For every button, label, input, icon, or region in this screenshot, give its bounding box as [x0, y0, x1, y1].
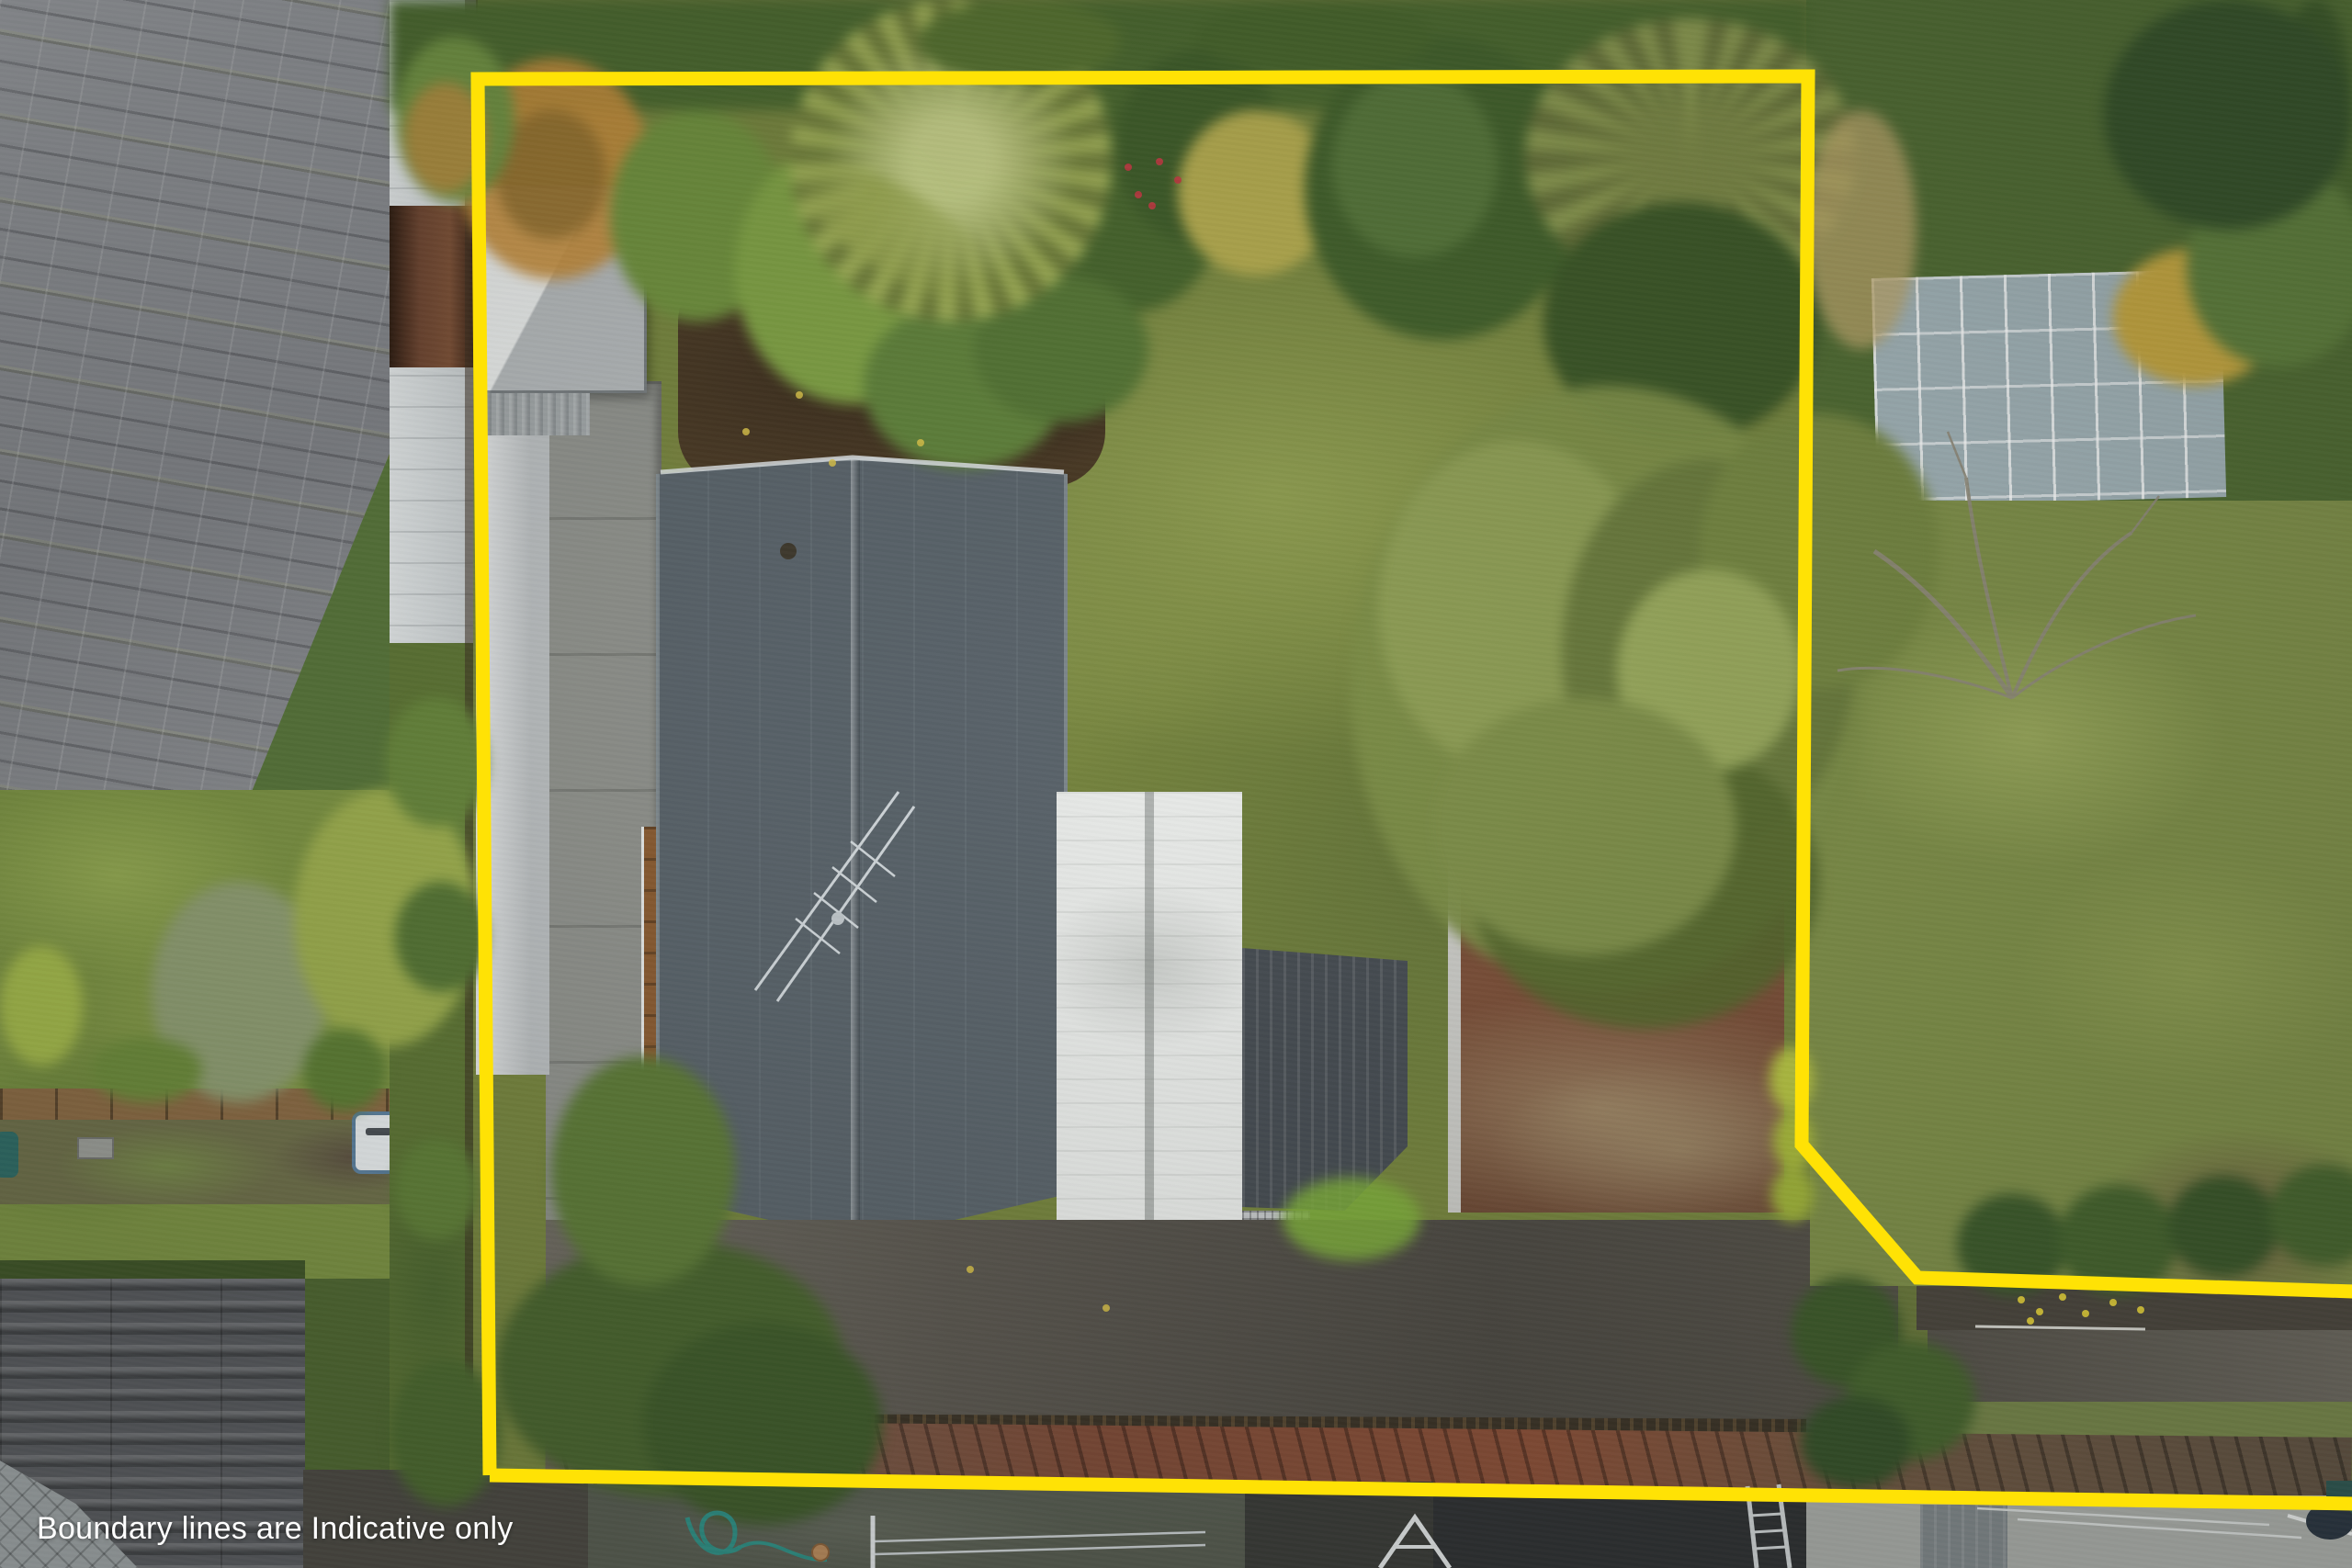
- aerial-photo: Boundary lines are Indicative only: [0, 0, 2352, 1568]
- watermark-text: Boundary lines are Indicative only: [37, 1511, 514, 1547]
- boundary-line-1: [478, 76, 2352, 1475]
- boundary-overlay: [0, 0, 2352, 1568]
- boundary-line-2: [490, 1475, 2352, 1504]
